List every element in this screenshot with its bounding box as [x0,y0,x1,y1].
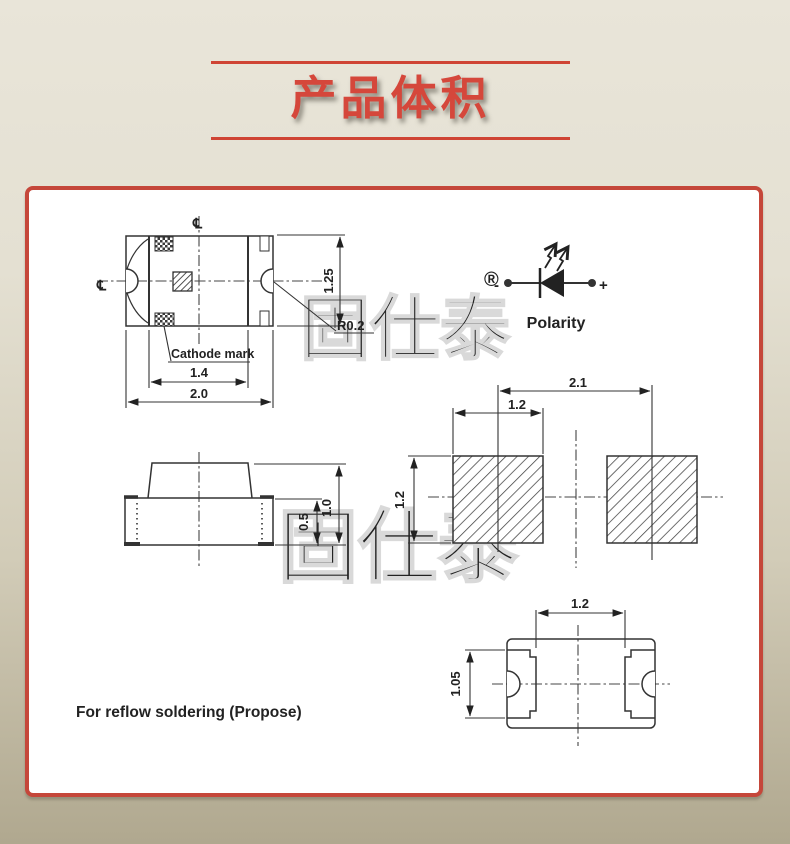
diode-triangle [540,269,564,297]
lens-dome [148,463,252,498]
left-terminal-arc-top [127,239,148,269]
footprint-drawing: 1.2 1.05 [448,596,670,746]
die-pad [173,272,192,291]
plus-sign: + [599,277,608,294]
dim-label-base-height: 0.5 [296,513,311,531]
dim-label-pad-width: 1.2 [508,397,526,412]
right-terminal-slot-top [260,236,269,251]
dim-label-gap: 1.2 [571,596,589,611]
dim-label-terminal-height: 1.05 [448,671,463,696]
cathode-mark-label: Cathode mark [171,347,254,361]
technical-drawing: 固仕泰 固仕泰 ® [0,0,790,844]
light-emission-arrow-2 [557,247,568,271]
polarity-symbol: - + Polarity [494,244,608,332]
left-castellation-notch [126,269,138,293]
anode-dot [588,279,596,287]
dim-label-inner-width: 1.4 [190,365,209,380]
cathode-mark-top [155,237,173,251]
watermark-text-1: 固仕泰 [300,290,511,368]
minus-sign: - [494,277,499,294]
left-terminal-arc-bottom [127,293,148,323]
dim-label-pitch: 2.1 [569,375,587,390]
cathode-leader-line [164,326,171,361]
centerline-symbol-left: ℄ [96,277,107,293]
cathode-mark-bottom [155,313,174,326]
dim-label-height: 1.25 [321,268,336,293]
product-dimensions-page: 产品体积 固仕泰 [0,0,790,844]
cathode-dot [504,279,512,287]
centerline-symbol-top: ℄ [192,215,203,231]
right-terminal-slot-bottom [260,311,269,326]
light-emission-arrow-1 [545,244,556,268]
right-bottom-castellation [642,671,655,697]
dim-label-radius: R0.2 [337,318,364,333]
dim-label-total-height: 1.0 [319,499,334,517]
reflow-note: For reflow soldering (Propose) [76,704,302,721]
right-castellation-notch [261,269,273,293]
left-bottom-castellation [507,671,520,697]
dim-label-outer-width: 2.0 [190,386,208,401]
polarity-label: Polarity [527,315,586,332]
dim-label-pad-height: 1.2 [392,491,407,509]
